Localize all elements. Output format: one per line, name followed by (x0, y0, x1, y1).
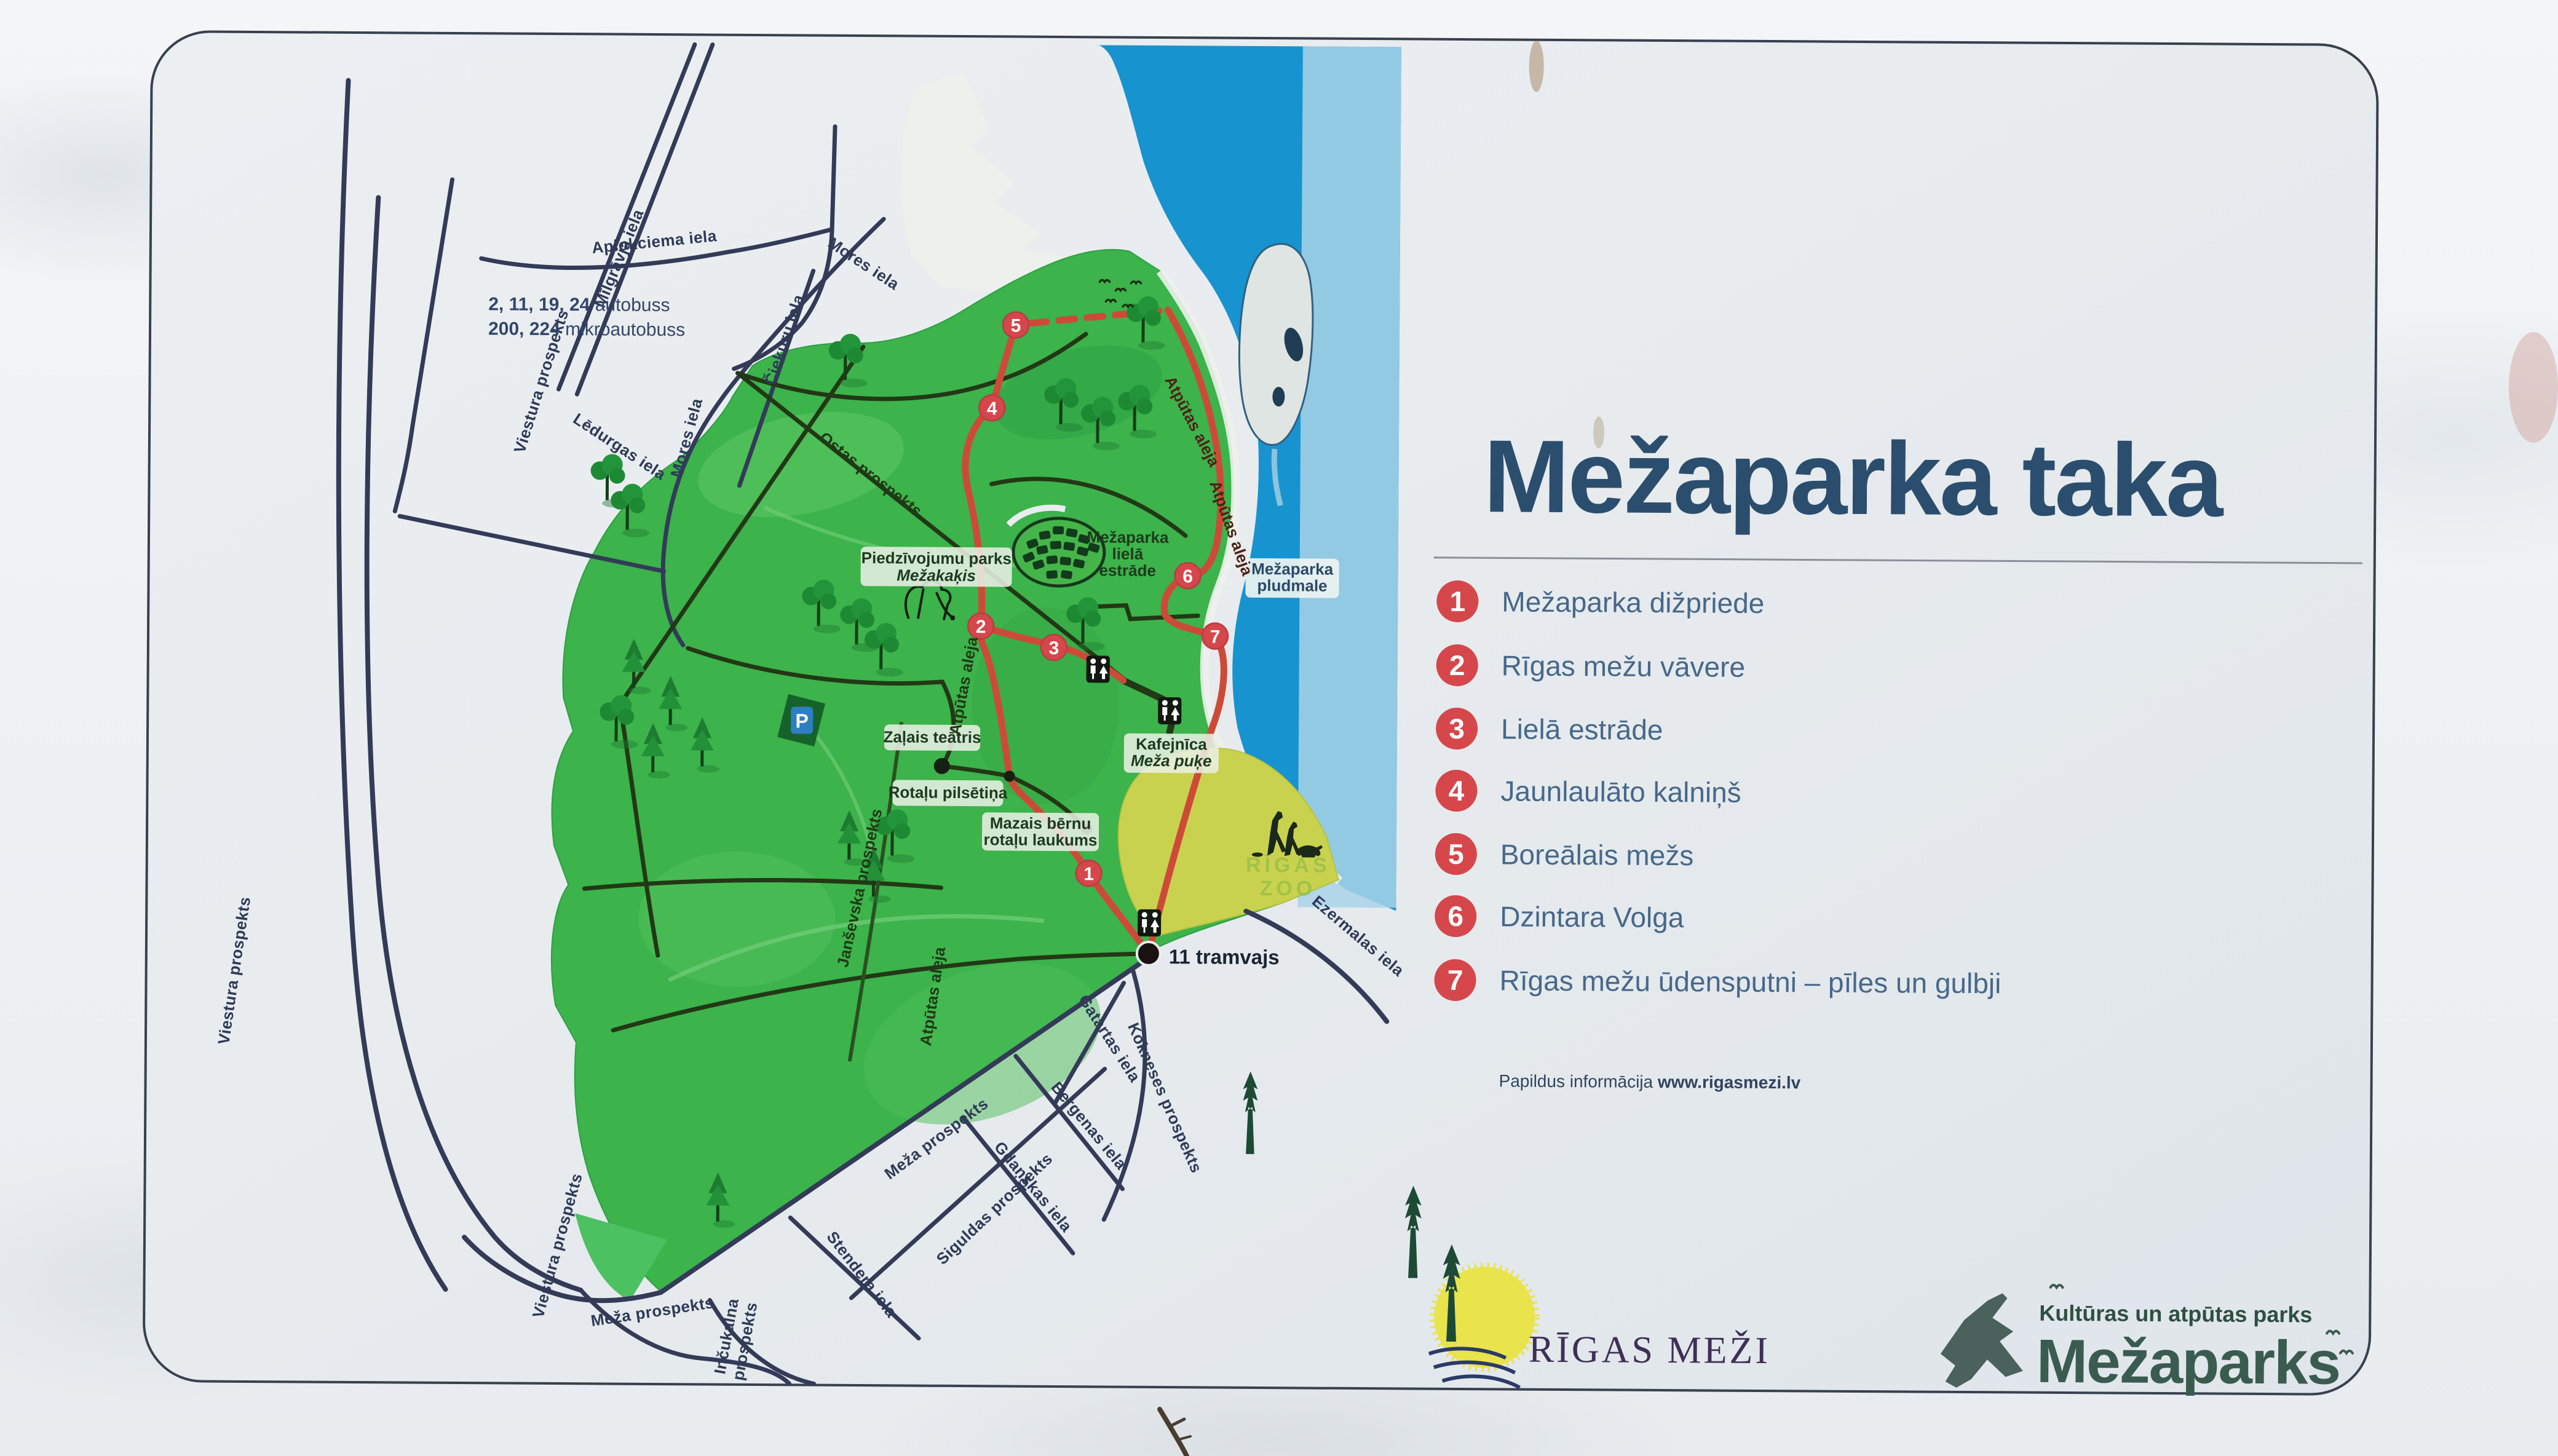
label-estrade-1: Mežaparka (1087, 528, 1169, 547)
map-marker-1: 1 (1083, 864, 1094, 884)
water-light-band (1297, 46, 1401, 908)
legend-num-5: 5 (1448, 838, 1464, 870)
tram-terminus-dot (1137, 942, 1160, 965)
label-adventure-park: Piedzīvojumu parks (861, 548, 1012, 568)
label-beach-2: pludmale (1257, 576, 1327, 595)
playtown-dot (1004, 770, 1015, 781)
map-marker-6: 6 (1182, 566, 1193, 587)
legend-num-1: 1 (1449, 585, 1465, 617)
legend-label-1: Mežaparka dižpriede (1502, 585, 1764, 619)
label-estrade-3: estrāde (1099, 561, 1156, 580)
label-adventure-park-2: Mežakaķis (897, 566, 976, 585)
legend-label-7: Rīgas mežu ūdensputni – pīles un gulbji (1499, 964, 2001, 999)
legend-label-2: Rīgas mežu vāvere (1502, 649, 1746, 682)
label-playground-2: rotaļu laukums (983, 830, 1097, 849)
legend-label-4: Jaunlaulāto kalniņš (1500, 775, 1741, 808)
mezaparks-tagline: Kultūras un atpūtas parks (2039, 1300, 2312, 1327)
sign-board: RĪGAS ZOO P 1 2 3 4 5 (144, 31, 2378, 1398)
rigas-mezi-wordmark: RĪGAS MEŽI (1529, 1329, 1770, 1372)
label-play-town: Rotaļu pilsētiņa (889, 783, 1008, 802)
legend-label-5: Boreālais mežs (1500, 838, 1694, 871)
legend-num-7: 7 (1447, 964, 1463, 996)
legend-num-3: 3 (1449, 713, 1465, 745)
mezaparks-wordmark: Mežaparks (2036, 1327, 2340, 1398)
map-marker-7: 7 (1210, 627, 1221, 647)
twig (1160, 1409, 1190, 1456)
map-marker-2: 2 (976, 617, 986, 637)
info-line: Papildus informācija www.rigasmezi.lv (1499, 1071, 1801, 1092)
wc-icon (1158, 697, 1181, 724)
transit-note-line2: 200, 224 mikroautobuss (488, 318, 685, 340)
legend-label-6: Dzintara Volga (1500, 900, 1684, 933)
blurred-object (2509, 332, 2558, 443)
legend-num-2: 2 (1449, 649, 1465, 681)
zoo-label-line1: RĪGAS (1246, 853, 1331, 877)
legend-num-4: 4 (1449, 775, 1465, 807)
map-marker-4: 4 (987, 398, 997, 419)
label-green-theatre: Zaļais teātris (883, 727, 981, 746)
page-title: Mežaparka taka (1483, 418, 2225, 538)
label-cafe-1: Kafejnīca (1136, 735, 1207, 754)
wc-icon (1138, 909, 1161, 936)
theatre-dot (934, 758, 950, 774)
transit-note-line1: 2, 11, 19, 24 autobuss (488, 294, 670, 315)
map-marker-3: 3 (1048, 638, 1059, 659)
wc-icon (1087, 655, 1110, 682)
map-marker-5: 5 (1011, 316, 1021, 336)
label-cafe-2: Meža puķe (1131, 751, 1212, 770)
zipline-icon-end (950, 615, 955, 620)
label-tram: 11 tramvajs (1169, 945, 1280, 968)
label-estrade-2: lielā (1112, 545, 1143, 563)
legend-label-3: Lielā estrāde (1501, 713, 1663, 746)
legend-num-6: 6 (1447, 900, 1463, 932)
photo-of-park-sign: RĪGAS ZOO P 1 2 3 4 5 (0, 0, 2558, 1456)
svg-text:P: P (795, 710, 809, 732)
zoo-label-line2: ZOO (1260, 877, 1317, 901)
